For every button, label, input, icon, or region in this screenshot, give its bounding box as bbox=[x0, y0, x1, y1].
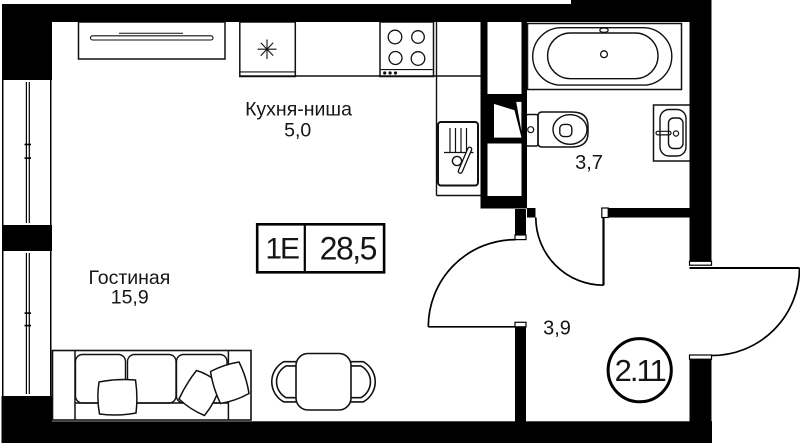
svg-text:1Е: 1Е bbox=[265, 233, 299, 266]
svg-text:Гостиная: Гостиная bbox=[88, 267, 170, 289]
svg-text:15,9: 15,9 bbox=[111, 287, 149, 309]
svg-text:3,7: 3,7 bbox=[575, 152, 603, 174]
svg-text:28,5: 28,5 bbox=[320, 231, 377, 267]
svg-text:Кухня-ниша: Кухня-ниша bbox=[245, 99, 352, 121]
svg-text:3,9: 3,9 bbox=[543, 318, 571, 340]
svg-text:5,0: 5,0 bbox=[284, 120, 311, 142]
svg-text:2.11: 2.11 bbox=[615, 353, 666, 388]
